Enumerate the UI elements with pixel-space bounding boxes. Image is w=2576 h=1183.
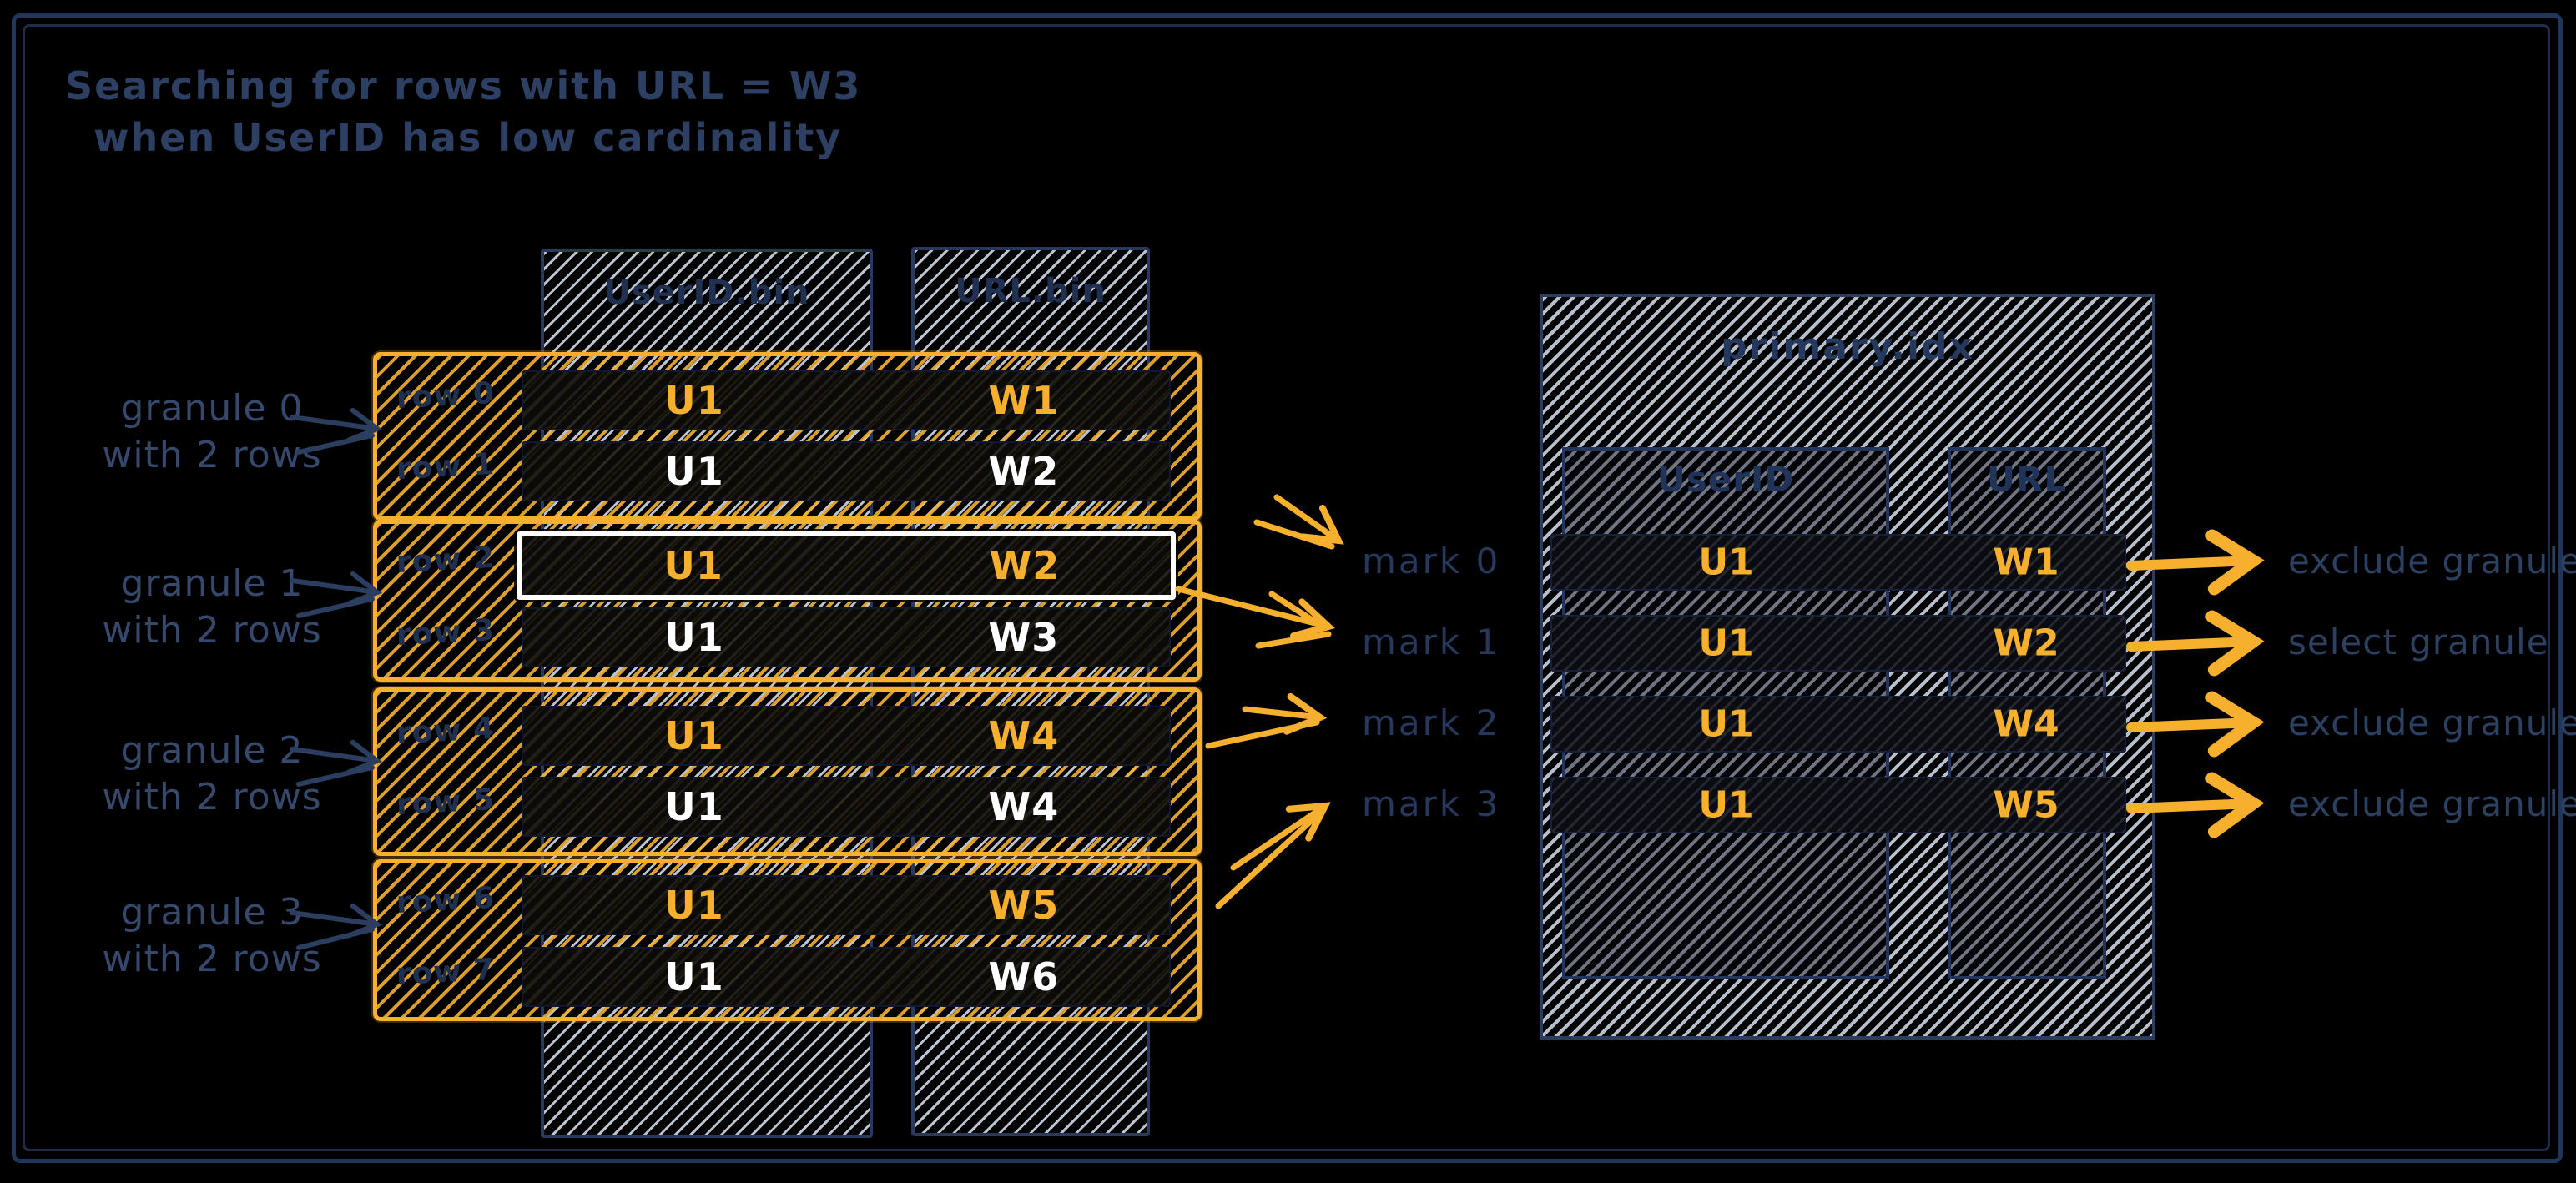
index-row: U1 W2 bbox=[1550, 615, 2126, 672]
table-row: U1 W1 bbox=[522, 370, 1171, 430]
granule-3-label: granule 3 with 2 rows bbox=[48, 889, 376, 983]
cell-url: W3 bbox=[988, 615, 1059, 660]
row-label-3: row 3 bbox=[381, 612, 510, 653]
row-label-4: row 4 bbox=[381, 711, 510, 752]
cell-url: W1 bbox=[1993, 541, 2059, 584]
granule-1-label: granule 1 with 2 rows bbox=[48, 561, 376, 654]
table-row: U1 W2 bbox=[522, 441, 1171, 501]
granule-2-note: with 2 rows bbox=[48, 774, 376, 821]
cell-url: W2 bbox=[1993, 622, 2059, 665]
action-label-1: select granule bbox=[2288, 620, 2549, 665]
cell-url: W4 bbox=[1993, 703, 2059, 746]
cell-url: W5 bbox=[1993, 784, 2059, 827]
diagram-canvas: Searching for rows with URL = W3 when Us… bbox=[0, 0, 2576, 1183]
table-row: U1 W4 bbox=[522, 706, 1171, 766]
cell-url: W2 bbox=[988, 449, 1059, 494]
primary-index-title: primary.idx bbox=[1543, 325, 2152, 368]
cell-userid: U1 bbox=[1698, 703, 1753, 746]
granule-3-note: with 2 rows bbox=[48, 936, 376, 983]
row-label-7: row 7 bbox=[381, 952, 510, 993]
table-row-highlighted: U1 W2 bbox=[517, 531, 1176, 600]
granule-3-name: granule 3 bbox=[48, 889, 376, 936]
cell-userid: U1 bbox=[1698, 541, 1753, 584]
granule-1-name: granule 1 bbox=[48, 561, 376, 607]
cell-url: W1 bbox=[988, 378, 1059, 423]
table-row: U1 W3 bbox=[522, 607, 1171, 667]
table-row: U1 W5 bbox=[522, 875, 1171, 935]
cell-userid: U1 bbox=[664, 954, 723, 999]
cell-url: W4 bbox=[988, 713, 1059, 758]
cell-url: W2 bbox=[990, 543, 1061, 588]
cell-url: W5 bbox=[988, 883, 1059, 928]
column-header-url-bin: URL.bin bbox=[915, 272, 1147, 310]
cell-userid: U1 bbox=[664, 883, 723, 928]
row-label-0: row 0 bbox=[381, 375, 510, 416]
cell-userid: U1 bbox=[1698, 622, 1753, 665]
granule-2-label: granule 2 with 2 rows bbox=[48, 727, 376, 821]
column-header-userid-bin: UserID.bin bbox=[544, 274, 870, 312]
cell-userid: U1 bbox=[664, 615, 723, 660]
granule-0-label: granule 0 with 2 rows bbox=[48, 385, 376, 479]
table-row: U1 W4 bbox=[522, 777, 1171, 837]
cell-userid: U1 bbox=[663, 543, 723, 588]
granule-1-note: with 2 rows bbox=[48, 607, 376, 654]
title-line-1: Searching for rows with URL = W3 bbox=[65, 63, 861, 108]
row-label-6: row 6 bbox=[381, 880, 510, 921]
row-label-2: row 2 bbox=[381, 540, 510, 581]
index-row: U1 W5 bbox=[1550, 777, 2126, 833]
cell-userid: U1 bbox=[664, 449, 723, 494]
cell-userid: U1 bbox=[664, 713, 723, 758]
diagram-title: Searching for rows with URL = W3 when Us… bbox=[65, 60, 861, 164]
action-label-3: exclude granule bbox=[2288, 782, 2576, 827]
table-row: U1 W6 bbox=[522, 947, 1171, 1007]
row-label-1: row 1 bbox=[381, 446, 510, 487]
index-column-header-url: URL bbox=[1951, 459, 2103, 500]
granule-2-name: granule 2 bbox=[48, 727, 376, 774]
cell-url: W4 bbox=[988, 784, 1059, 829]
title-line-2: when UserID has low cardinality bbox=[65, 112, 861, 164]
index-row: U1 W1 bbox=[1550, 534, 2126, 591]
granule-0-note: with 2 rows bbox=[48, 432, 376, 479]
cell-url: W6 bbox=[988, 954, 1059, 999]
cell-userid: U1 bbox=[1698, 784, 1753, 827]
row-label-5: row 5 bbox=[381, 782, 510, 823]
index-column-header-userid: UserID bbox=[1565, 459, 1886, 500]
cell-userid: U1 bbox=[664, 784, 723, 829]
granule-0-name: granule 0 bbox=[48, 385, 376, 432]
index-row: U1 W4 bbox=[1550, 696, 2126, 753]
action-label-2: exclude granule bbox=[2288, 701, 2576, 746]
cell-userid: U1 bbox=[664, 378, 723, 423]
action-label-0: exclude granule bbox=[2288, 539, 2576, 584]
